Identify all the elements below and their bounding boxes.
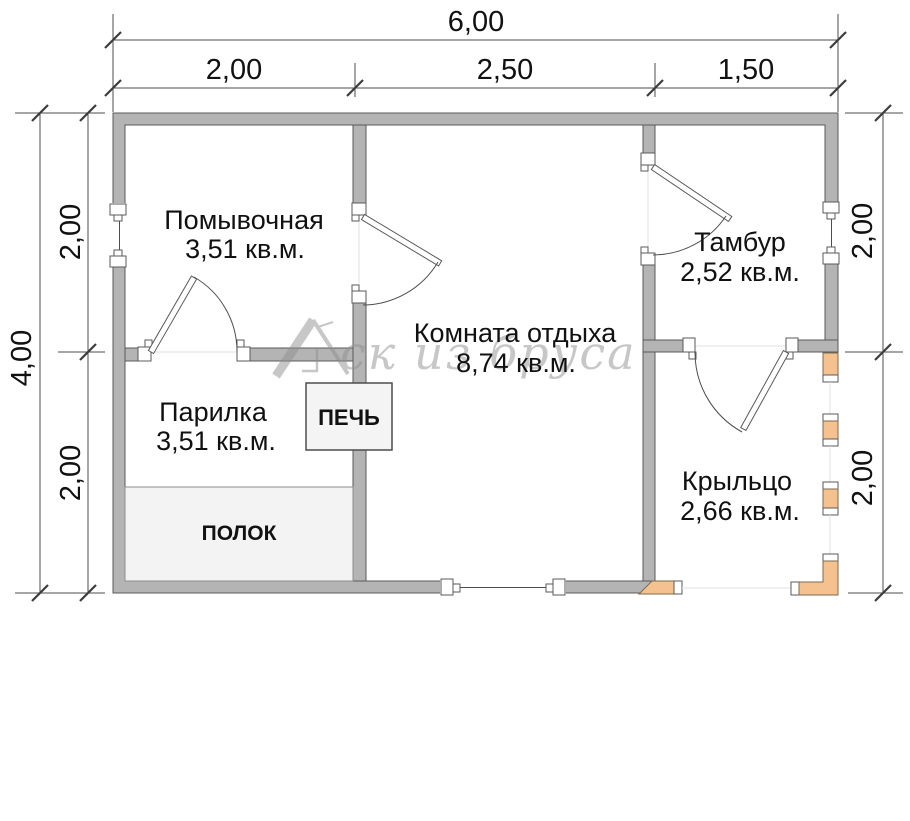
wall-restroom-tambour-lower	[643, 265, 655, 581]
door-jamb	[641, 153, 655, 165]
door-washroom-steamroom	[138, 276, 250, 361]
window-nub	[827, 247, 835, 253]
porch-cap	[823, 414, 838, 421]
window-cap	[110, 256, 126, 267]
dim-left-seg-1: 2,00	[55, 204, 87, 260]
door-washroom-restroom	[352, 203, 442, 305]
room-label-tambour: Тамбур	[694, 227, 786, 257]
door-jamb-nub	[641, 165, 648, 171]
dim-right-seg-2: 2,00	[847, 450, 879, 506]
window-nub	[114, 250, 122, 256]
window-nub	[114, 215, 122, 221]
house-roof-icon	[318, 322, 333, 327]
door-swing-arc	[363, 262, 438, 305]
room-label-porch: Крыльцо	[682, 466, 792, 496]
door-jamb	[641, 253, 655, 265]
porch-cap	[791, 582, 799, 595]
dim-left-seg-2: 2,00	[55, 445, 87, 501]
dim-right-seg-1: 2,00	[847, 203, 879, 259]
door-leaf	[148, 276, 196, 353]
door-jamb	[786, 338, 798, 352]
door-tambour-porch	[683, 338, 798, 432]
wall-tambour-porch-right	[797, 340, 838, 352]
porch-cap	[823, 508, 838, 515]
porch-cap	[823, 554, 838, 561]
room-label-washroom: Помывочная	[164, 205, 323, 235]
door-swing-arc	[695, 352, 742, 432]
window-nub	[453, 584, 460, 592]
door-jamb	[352, 291, 366, 303]
room-area-tambour: 2,52 кв.м.	[680, 257, 800, 287]
window-right-wall	[823, 202, 839, 264]
window-left-wall	[110, 203, 126, 267]
dim-top-seg-3: 1,50	[718, 54, 774, 86]
door-jamb-nub	[352, 285, 359, 291]
window-cap	[823, 202, 839, 213]
bench-label: ПОЛОК	[202, 522, 277, 545]
door-leaf	[361, 214, 441, 265]
room-label-restroom: Комната отдыха	[414, 318, 617, 348]
dim-left-total: 4,00	[6, 330, 38, 386]
wall-washroom-restroom-upper	[353, 125, 366, 203]
door-jamb	[237, 347, 250, 361]
porch-cap	[823, 482, 838, 489]
stove-label: ПЕЧЬ	[318, 405, 380, 430]
window-bottom-wall	[440, 579, 566, 595]
room-area-porch: 2,66 кв.м.	[680, 496, 800, 526]
wall-restroom-tambour-upper	[643, 125, 655, 153]
porch-cap	[823, 375, 838, 382]
window-cap	[110, 204, 126, 215]
wall-tambour-porch-left	[643, 340, 683, 352]
porch-post	[823, 353, 838, 375]
door-leaf	[651, 165, 731, 222]
window-cap	[823, 253, 839, 264]
door-jamb-nub	[352, 215, 359, 221]
porch-post	[823, 489, 838, 508]
dim-top-seg-2: 2,50	[477, 54, 533, 86]
wall-washroom-steamroom-left	[125, 348, 138, 361]
door-swing-arc	[194, 277, 237, 352]
porch-cap	[674, 581, 682, 594]
door-jamb-nub	[641, 247, 648, 253]
window-cap	[553, 579, 565, 595]
dim-top-seg-1: 2,00	[206, 54, 262, 86]
room-area-washroom: 3,51 кв.м.	[185, 234, 305, 264]
window-cap	[441, 579, 453, 595]
door-leaf	[741, 351, 789, 431]
dim-top-total: 6,00	[448, 6, 504, 38]
floor-plan-page: ск из бруса Помывочная 3,51 кв.м. Парилк…	[0, 0, 910, 821]
porch-cap	[823, 439, 838, 446]
floor-plan-drawing: ск из бруса Помывочная 3,51 кв.м. Парилк…	[0, 0, 910, 821]
room-label-steamroom: Парилка	[159, 397, 268, 427]
porch-corner-post	[799, 561, 838, 595]
door-jamb-nub	[237, 340, 244, 347]
door-jamb	[683, 338, 695, 352]
room-area-steamroom: 3,51 кв.м.	[156, 426, 276, 456]
door-jamb	[352, 203, 366, 215]
porch-post	[823, 421, 838, 439]
room-area-restroom: 8,74 кв.м.	[456, 348, 576, 378]
window-nub	[546, 584, 553, 592]
window-nub	[827, 213, 835, 219]
